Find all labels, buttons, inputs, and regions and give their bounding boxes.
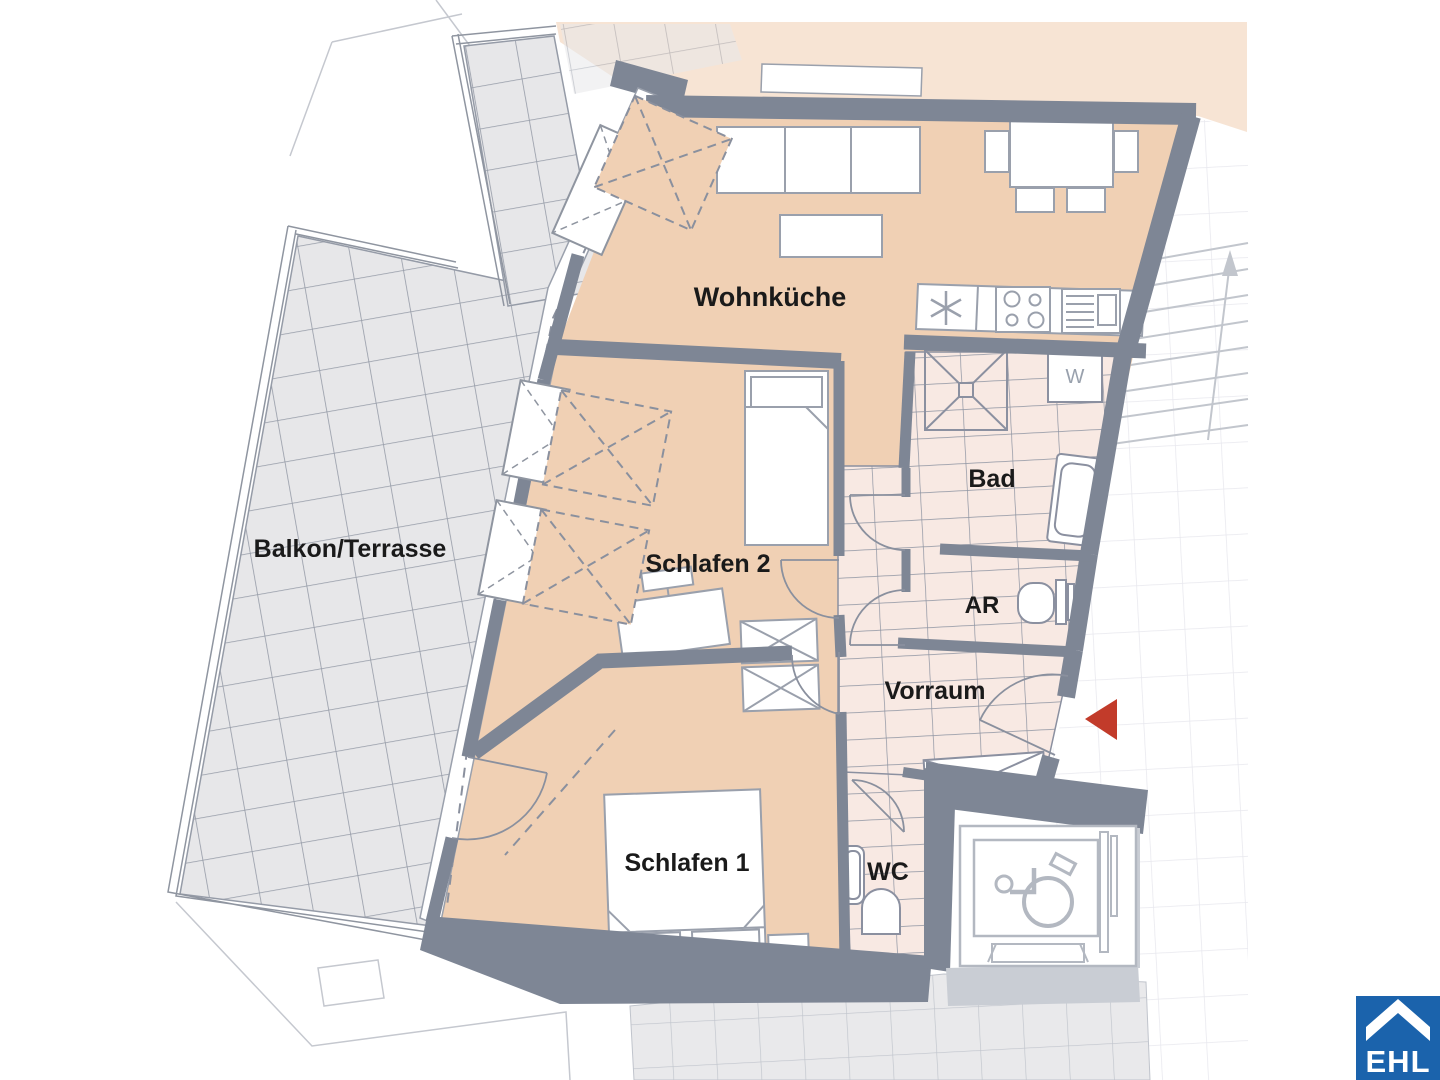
elevator [960, 826, 1136, 966]
dining-chair [1114, 131, 1138, 172]
dining-table [1010, 117, 1113, 187]
window-leaf [543, 390, 671, 506]
pillow [751, 377, 822, 407]
room-label-bad: Bad [968, 465, 1015, 493]
room-label-wc: WC [867, 858, 909, 886]
toilet-ar [1018, 580, 1074, 624]
dining-chair [985, 131, 1009, 172]
ehl-logo: EHL [1356, 996, 1440, 1080]
room-label-balkon: Balkon/Terrasse [254, 535, 447, 563]
floor-plan: Wohnküche Balkon/Terrasse Schlafen 2 Sch… [0, 0, 1440, 1080]
ehl-logo-text: EHL [1366, 1044, 1431, 1079]
coffee-table [780, 215, 882, 257]
sofa [717, 127, 920, 193]
floor-plan-page: Wohnküche Balkon/Terrasse Schlafen 2 Sch… [0, 0, 1440, 1080]
elevator-bench [992, 944, 1084, 962]
elevator-bottom-band [946, 964, 1140, 1006]
neighbor-window [761, 64, 922, 96]
dining-chair [1067, 188, 1105, 212]
toilet-wc [862, 889, 900, 934]
room-label-schlafen2: Schlafen 2 [645, 550, 770, 578]
room-label-ar: AR [965, 592, 1000, 619]
room-label-schlafen1: Schlafen 1 [624, 849, 749, 877]
room-label-vorraum: Vorraum [885, 677, 986, 705]
dining-chair [1016, 188, 1054, 212]
room-label-wohnkueche: Wohnküche [694, 282, 847, 312]
washer-label: W [1066, 366, 1085, 388]
